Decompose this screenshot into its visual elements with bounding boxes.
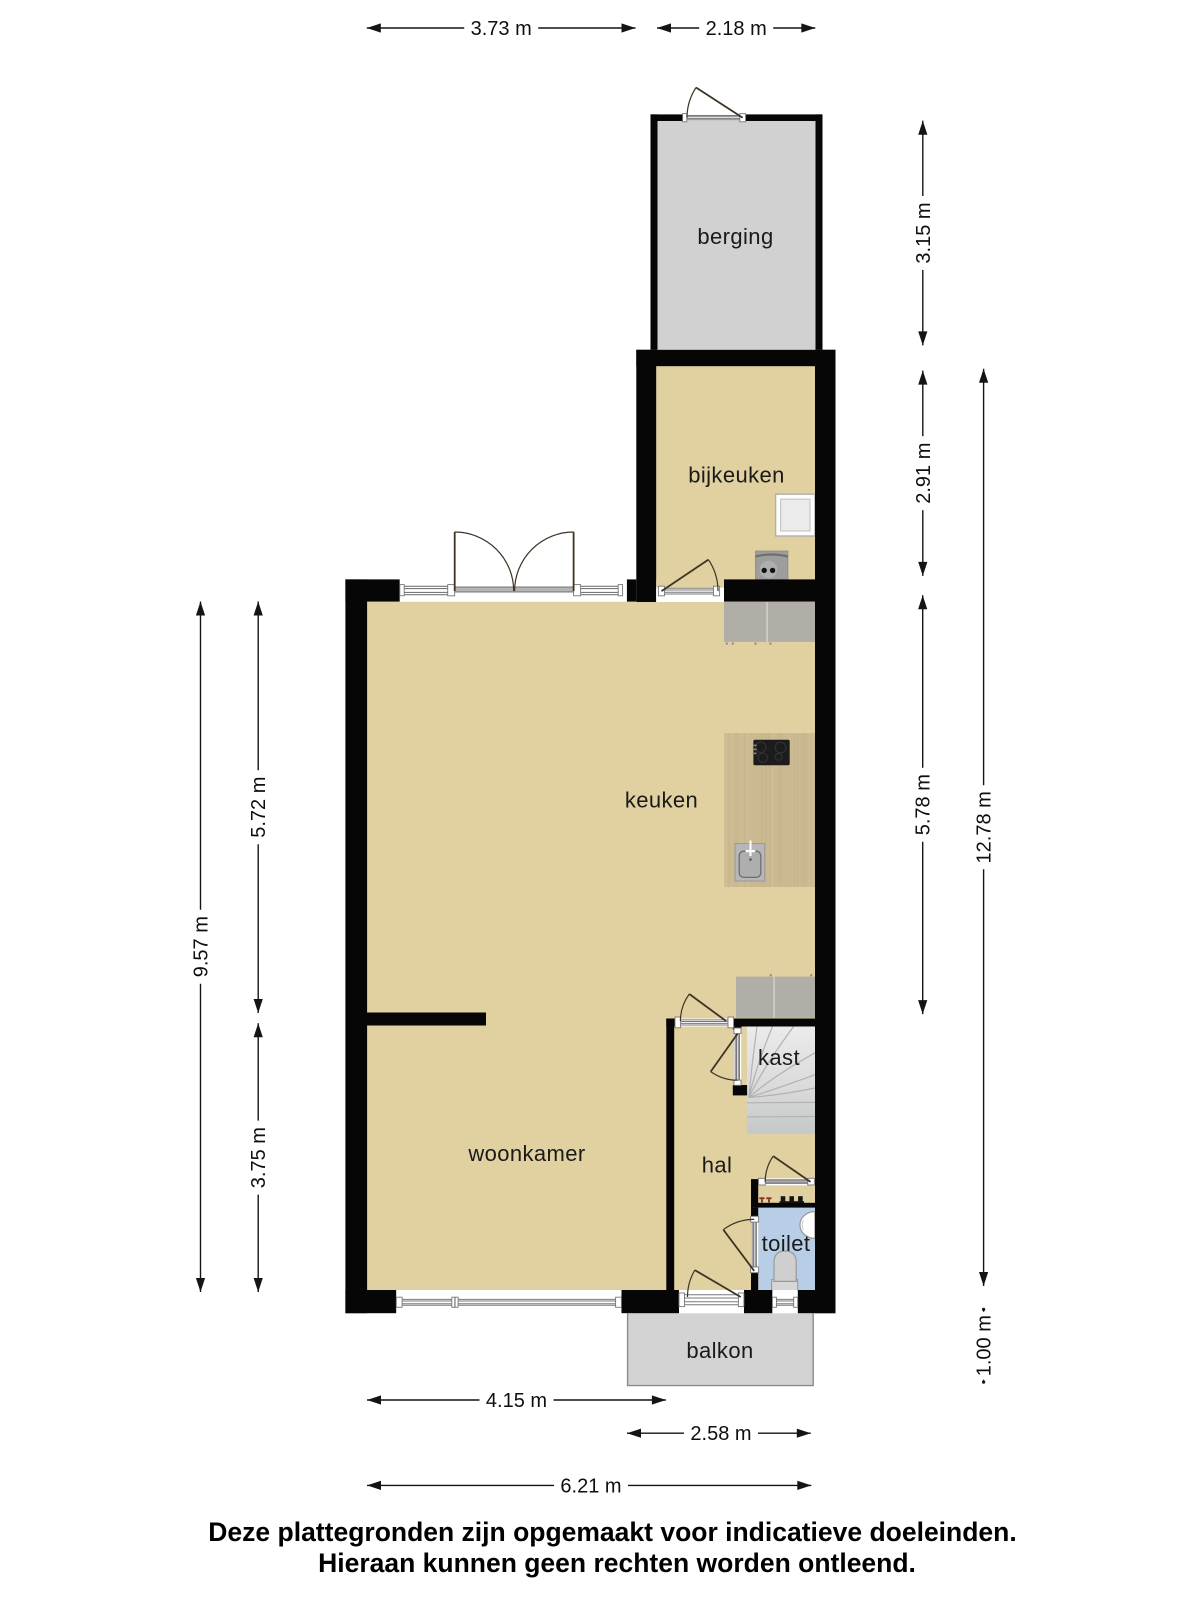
- svg-text:9.57 m: 9.57 m: [191, 916, 213, 977]
- svg-text:2.58 m: 2.58 m: [690, 1423, 751, 1445]
- svg-text:Deze plattegronden zijn opgema: Deze plattegronden zijn opgemaakt voor i…: [208, 1517, 1016, 1547]
- svg-text:5.72 m: 5.72 m: [248, 777, 270, 838]
- svg-text:toilet: toilet: [762, 1231, 811, 1256]
- svg-text:keuken: keuken: [625, 788, 698, 813]
- svg-text:kast: kast: [758, 1045, 800, 1070]
- svg-text:hal: hal: [702, 1153, 733, 1178]
- svg-text:woonkamer: woonkamer: [467, 1141, 585, 1166]
- svg-text:Hieraan kunnen geen rechten wo: Hieraan kunnen geen rechten worden ontle…: [318, 1548, 916, 1578]
- svg-text:12.78 m: 12.78 m: [974, 791, 996, 863]
- svg-text:6.21 m: 6.21 m: [560, 1475, 621, 1497]
- svg-text:1.00 m: 1.00 m: [974, 1315, 996, 1376]
- svg-text:5.78 m: 5.78 m: [913, 774, 935, 835]
- svg-text:2.91 m: 2.91 m: [913, 443, 935, 504]
- svg-text:2.18 m: 2.18 m: [706, 18, 767, 40]
- svg-text:balkon: balkon: [686, 1338, 753, 1363]
- svg-text:berging: berging: [697, 224, 773, 249]
- svg-text:3.15 m: 3.15 m: [913, 202, 935, 263]
- svg-text:3.73 m: 3.73 m: [471, 18, 532, 40]
- svg-text:bijkeuken: bijkeuken: [688, 463, 785, 488]
- svg-text:4.15 m: 4.15 m: [486, 1390, 547, 1412]
- svg-text:3.75 m: 3.75 m: [248, 1127, 270, 1188]
